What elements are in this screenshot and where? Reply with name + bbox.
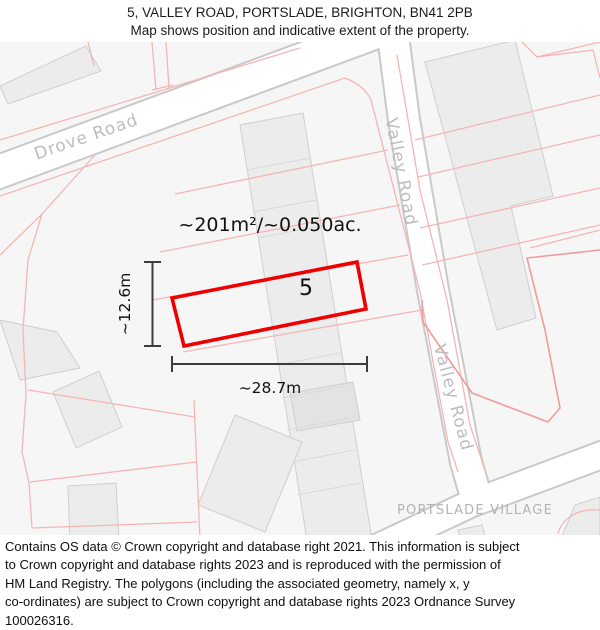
attribution-line: to Crown copyright and database rights 2… (5, 556, 595, 574)
area-label: ~201m²/~0.050ac. (178, 214, 361, 236)
building (68, 483, 119, 535)
width-dimension-label: ~28.7m (239, 379, 302, 397)
attribution-line: HM Land Registry. The polygons (includin… (5, 575, 595, 593)
copyright-attribution: Contains OS data © Crown copyright and d… (0, 535, 599, 630)
attribution-line: co-ordinates) are subject to Crown copyr… (5, 593, 595, 611)
attribution-line: 100026316. (5, 612, 595, 630)
report-header: 5, VALLEY ROAD, PORTSLADE, BRIGHTON, BN4… (0, 0, 600, 42)
map-description-subtitle: Map shows position and indicative extent… (0, 22, 600, 40)
district-label: PORTSLADE VILLAGE (397, 503, 553, 518)
plot-number-label: 5 (299, 276, 313, 301)
property-address-title: 5, VALLEY ROAD, PORTSLADE, BRIGHTON, BN4… (0, 0, 600, 22)
depth-dimension-label: ~12.6m (116, 273, 134, 336)
map-canvas: ~201m²/~0.050ac. 5 ~28.7m ~12.6m Drove R… (0, 42, 600, 535)
attribution-line: Contains OS data © Crown copyright and d… (5, 538, 595, 556)
property-map: ~201m²/~0.050ac. 5 ~28.7m ~12.6m Drove R… (0, 42, 600, 535)
